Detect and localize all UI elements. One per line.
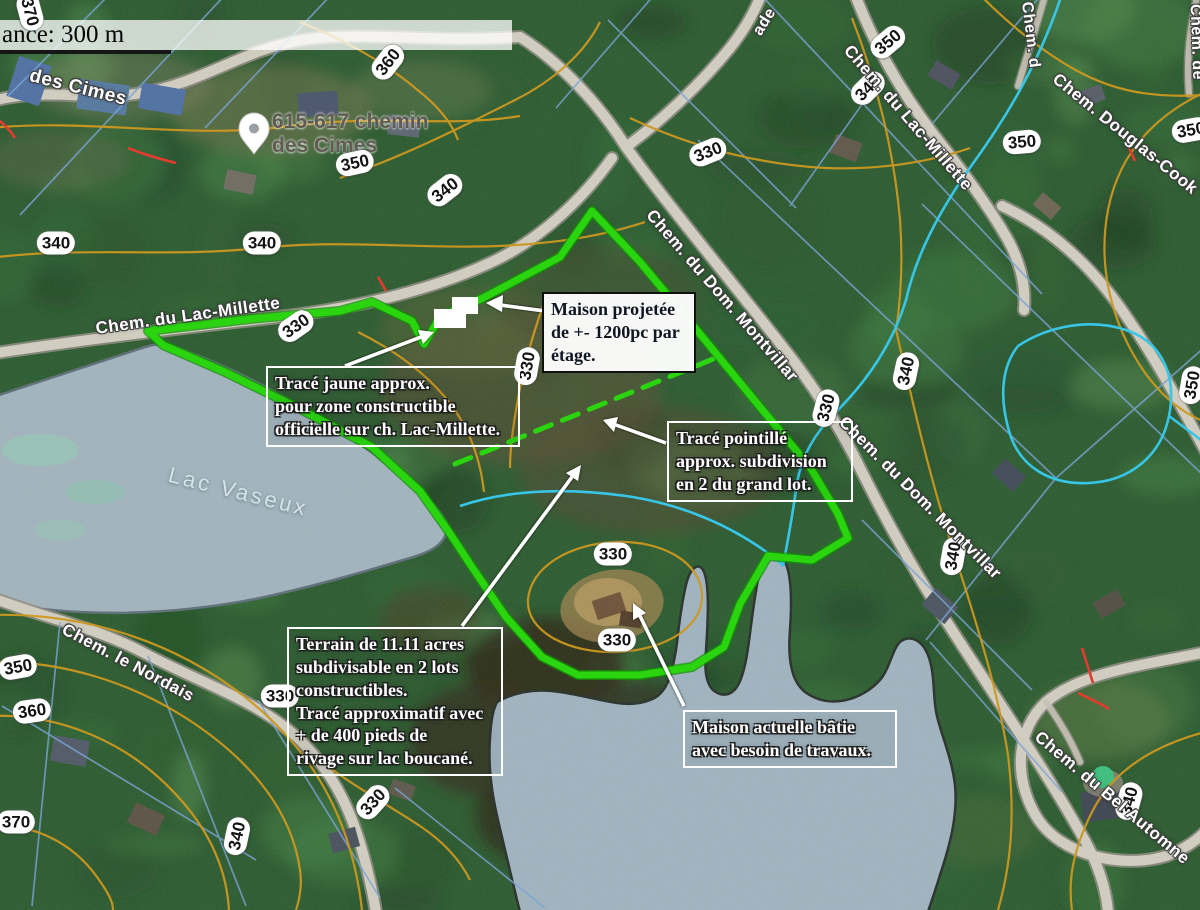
contour-elevation-badge: 330	[686, 134, 730, 170]
trace-jaune-note: Tracé jaune approx. pour zone constructi…	[266, 366, 520, 447]
maison-projetee-note: Maison projetée de +- 1200pc par étage.	[542, 292, 696, 373]
road-label: Chem. du Lac-Millette	[839, 41, 976, 195]
terrain-note: Terrain de 11.11 acres subdivisable en 2…	[287, 627, 503, 776]
road-label: Chem. de	[1186, 4, 1200, 81]
contour-elevation-badge: 340	[37, 232, 75, 255]
measurement-line	[0, 50, 171, 54]
contour-elevation-badge: 330	[352, 780, 395, 824]
map-overlay: Lac Vaseux 615-617 chemindes Cimes ance:…	[0, 0, 1200, 910]
location-pin-icon[interactable]	[237, 111, 271, 155]
contour-elevation-badge: 350	[866, 21, 910, 63]
road-label: Chem. d	[1017, 1, 1043, 69]
contour-elevation-badge: 350	[1170, 115, 1200, 144]
road-label: Chem. le Nordais	[58, 620, 197, 707]
lake-name-label: Lac Vaseux	[166, 462, 311, 522]
contour-elevation-badge: 350	[1177, 364, 1200, 406]
contour-elevation-badge: 340	[423, 169, 467, 211]
contour-elevation-badge: 350	[0, 652, 39, 681]
contour-elevation-badge: 360	[11, 697, 52, 725]
road-label: Chem. du Lac-Millette	[94, 293, 281, 339]
contour-elevation-badge: 340	[222, 815, 252, 857]
measurement-distance-text: ance: 300 m	[2, 21, 124, 49]
contour-elevation-badge: 340	[243, 232, 281, 255]
road-label: Chem. du Bel Automne	[1030, 727, 1193, 869]
road-label: Chem. du Dom. Montvillar	[835, 413, 1006, 584]
contour-elevation-badge: 340	[891, 350, 921, 392]
road-label: des Cimes	[27, 65, 129, 110]
map-canvas[interactable]: Lac Vaseux 615-617 chemindes Cimes ance:…	[0, 0, 1200, 910]
maison-actuelle-note: Maison actuelle bâtie avec besoin de tra…	[683, 710, 897, 768]
trace-pointille-note: Tracé pointillé approx. subdivision en 2…	[667, 421, 853, 502]
contour-elevation-badge: 330	[594, 543, 632, 566]
contour-elevation-badge: 370	[0, 811, 35, 834]
pin-address-label: 615-617 chemindes Cimes	[272, 110, 428, 158]
road-label: ade	[750, 5, 781, 39]
measurement-bar: ance: 300 m	[0, 20, 512, 50]
contour-elevation-badge: 350	[1002, 129, 1042, 155]
contour-elevation-badge: 330	[598, 629, 636, 652]
